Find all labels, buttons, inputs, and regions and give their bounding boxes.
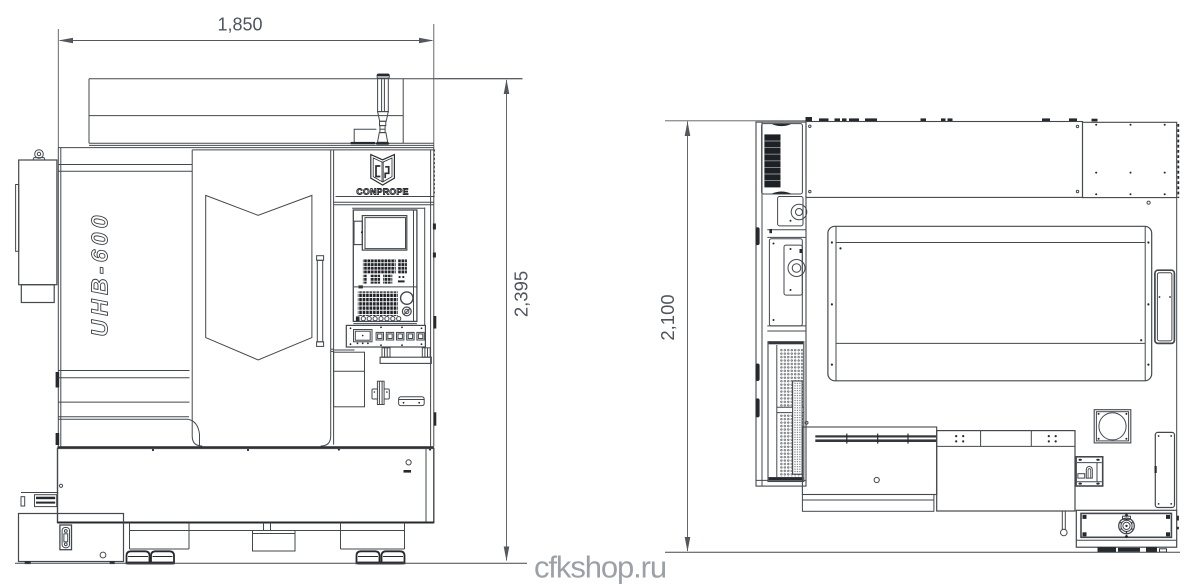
- svg-text:CONPROPE: CONPROPE: [356, 187, 408, 197]
- svg-text:1,850: 1,850: [217, 15, 262, 35]
- svg-text:cfkshop.ru: cfkshop.ru: [534, 550, 666, 584]
- svg-text:2,100: 2,100: [657, 294, 678, 340]
- svg-text:UHB-600: UHB-600: [87, 211, 113, 336]
- svg-text:2,395: 2,395: [511, 271, 532, 317]
